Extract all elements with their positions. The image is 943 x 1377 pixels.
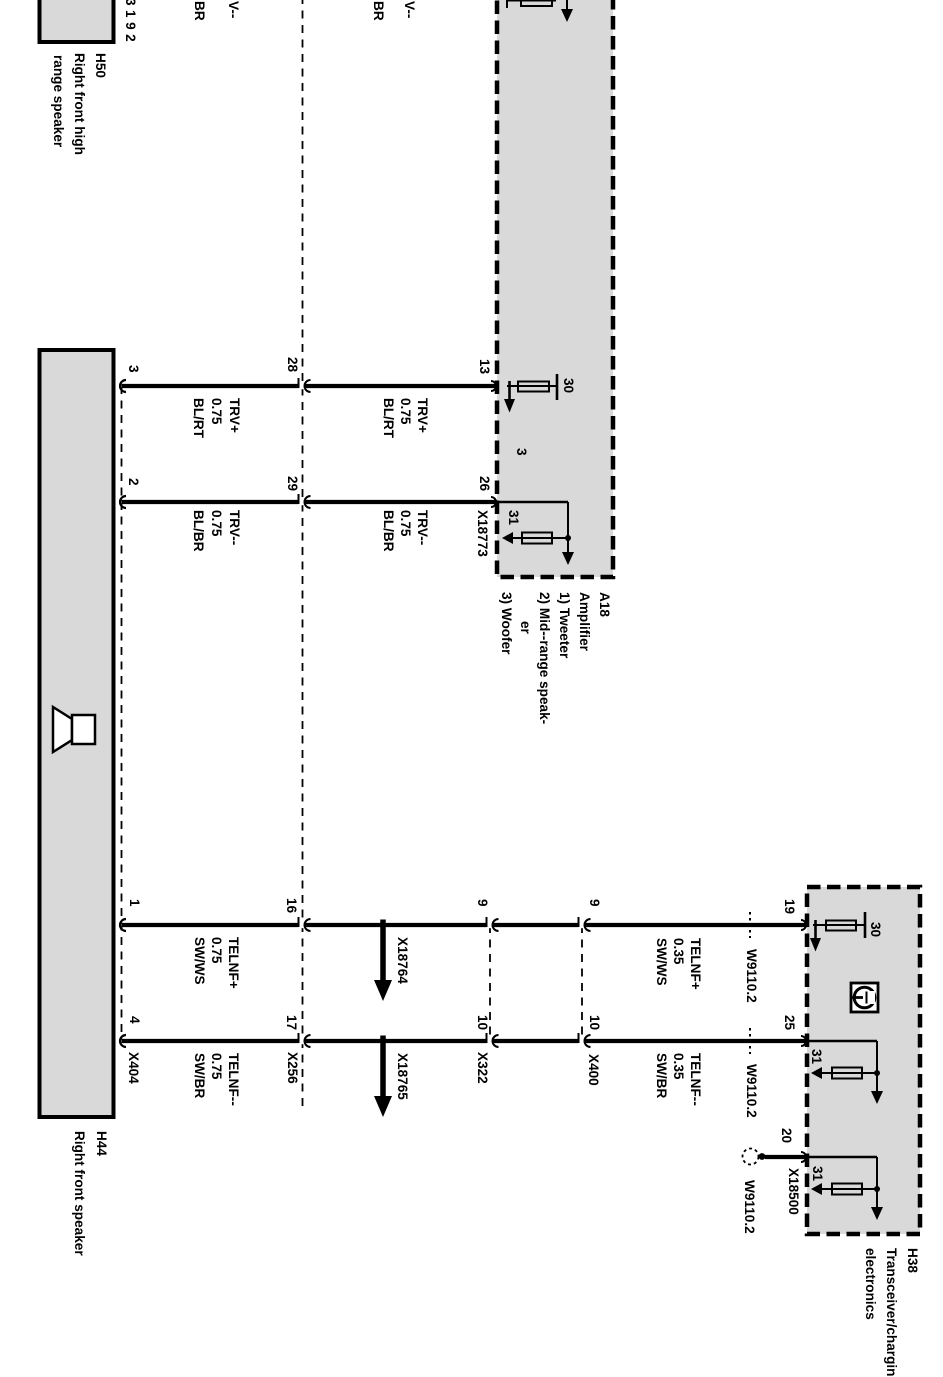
svg-text:TELNF+: TELNF+ bbox=[226, 937, 241, 989]
svg-text:X400: X400 bbox=[586, 1054, 601, 1086]
svg-text:9: 9 bbox=[587, 899, 602, 907]
svg-text:X322: X322 bbox=[475, 1052, 490, 1084]
svg-text:X18765: X18765 bbox=[395, 1053, 410, 1100]
svg-text:Transceiver/chargin: Transceiver/chargin bbox=[884, 1248, 899, 1376]
svg-text:H38: H38 bbox=[905, 1248, 920, 1273]
svg-text:13: 13 bbox=[477, 359, 492, 375]
svg-text:26: 26 bbox=[477, 476, 492, 492]
svg-text:19: 19 bbox=[782, 899, 797, 915]
svg-text:SW/BR: SW/BR bbox=[192, 1053, 207, 1098]
svg-text:SW/WS: SW/WS bbox=[192, 937, 207, 985]
svg-text:V--: V-- bbox=[402, 1, 417, 18]
svg-text:10: 10 bbox=[475, 1015, 490, 1030]
svg-text:X256: X256 bbox=[285, 1052, 300, 1084]
svg-text:H50: H50 bbox=[93, 53, 108, 78]
svg-text:0.75: 0.75 bbox=[209, 510, 224, 537]
svg-text:0.35: 0.35 bbox=[671, 1053, 686, 1080]
svg-text:0.35: 0.35 bbox=[671, 938, 686, 965]
svg-text:0.75: 0.75 bbox=[398, 398, 413, 425]
svg-text:TELNF--: TELNF-- bbox=[226, 1053, 241, 1106]
svg-text:31: 31 bbox=[506, 510, 521, 526]
svg-text:0.75: 0.75 bbox=[209, 937, 224, 964]
svg-text:A18: A18 bbox=[597, 592, 612, 617]
svg-text:X18500: X18500 bbox=[786, 1168, 801, 1215]
svg-text:31: 31 bbox=[810, 1166, 825, 1182]
svg-text:er: er bbox=[518, 621, 533, 635]
svg-text:SW/BR: SW/BR bbox=[654, 1053, 669, 1098]
svg-text:2) Mid--range speak-: 2) Mid--range speak- bbox=[537, 592, 552, 724]
svg-text:BL/RT: BL/RT bbox=[191, 398, 206, 439]
svg-text:H44: H44 bbox=[94, 1131, 109, 1156]
svg-text:electronics: electronics bbox=[863, 1248, 878, 1320]
svg-text:17: 17 bbox=[284, 1015, 299, 1030]
svg-text:30: 30 bbox=[868, 922, 883, 937]
svg-text:TRV+: TRV+ bbox=[227, 398, 242, 433]
svg-text:TELNF--: TELNF-- bbox=[688, 1053, 703, 1106]
svg-text:X18773: X18773 bbox=[475, 510, 490, 557]
svg-text:25: 25 bbox=[782, 1015, 797, 1031]
svg-text:10: 10 bbox=[587, 1015, 602, 1030]
svg-text:Right front high: Right front high bbox=[72, 53, 87, 155]
svg-text:4: 4 bbox=[127, 1016, 142, 1024]
svg-text:TRV--: TRV-- bbox=[415, 510, 430, 545]
svg-text:V--: V-- bbox=[226, 1, 241, 18]
svg-text:SW/WS: SW/WS bbox=[654, 938, 669, 986]
svg-text:30: 30 bbox=[561, 378, 576, 393]
svg-text:BL/BR: BL/BR bbox=[381, 510, 396, 552]
svg-text:0.75: 0.75 bbox=[398, 510, 413, 537]
svg-text:3: 3 bbox=[126, 365, 141, 373]
svg-text:1) Tweeter: 1) Tweeter bbox=[557, 592, 572, 659]
svg-text:Right front speaker: Right front speaker bbox=[72, 1131, 87, 1256]
svg-text:28: 28 bbox=[285, 357, 300, 373]
svg-text:TELNF+: TELNF+ bbox=[688, 938, 703, 990]
svg-text:TRV--: TRV-- bbox=[227, 510, 242, 545]
svg-text:BL/RT: BL/RT bbox=[381, 398, 396, 439]
svg-text:X18764: X18764 bbox=[395, 937, 410, 984]
svg-text:BR: BR bbox=[192, 1, 207, 21]
svg-text:29: 29 bbox=[285, 476, 300, 492]
svg-text:9: 9 bbox=[475, 899, 490, 907]
svg-text:3: 3 bbox=[514, 448, 529, 456]
svg-text:BR: BR bbox=[371, 1, 386, 21]
svg-text:TRV+: TRV+ bbox=[415, 398, 430, 433]
svg-text:16: 16 bbox=[284, 898, 299, 914]
svg-text:X404: X404 bbox=[126, 1052, 141, 1084]
svg-text:Amplifier: Amplifier bbox=[577, 592, 592, 652]
svg-text:BL/BR: BL/BR bbox=[191, 510, 206, 552]
svg-text:3) Woofer: 3) Woofer bbox=[499, 592, 514, 655]
svg-text:W9110.2: W9110.2 bbox=[744, 1064, 759, 1118]
svg-text:W9110.2: W9110.2 bbox=[742, 1180, 757, 1234]
svg-text:3192: 3192 bbox=[123, 0, 138, 46]
svg-text:0.75: 0.75 bbox=[209, 398, 224, 425]
svg-text:0.75: 0.75 bbox=[209, 1053, 224, 1080]
svg-text:1: 1 bbox=[127, 899, 142, 907]
svg-text:20: 20 bbox=[779, 1128, 794, 1143]
svg-text:31: 31 bbox=[809, 1049, 824, 1065]
svg-text:2: 2 bbox=[126, 478, 141, 486]
svg-text:W9110.2: W9110.2 bbox=[744, 949, 759, 1003]
svg-text:range speaker: range speaker bbox=[51, 55, 66, 148]
